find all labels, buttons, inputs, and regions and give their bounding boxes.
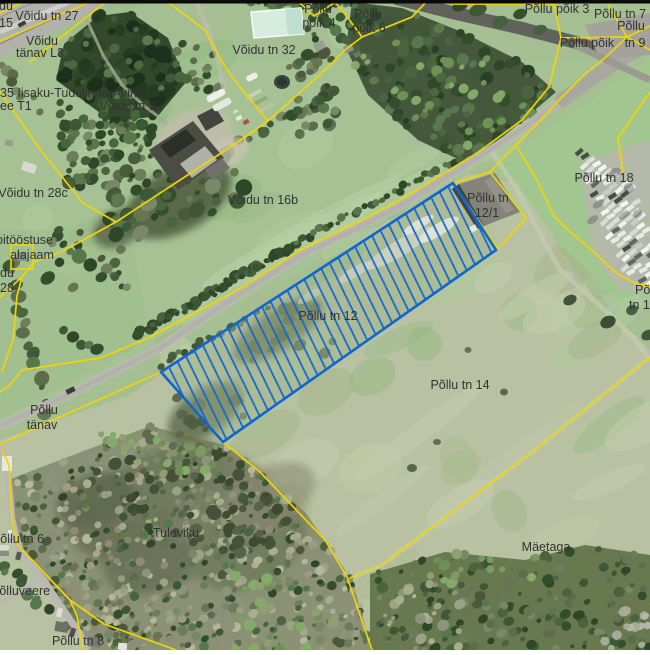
- svg-text:Võidu tn 32: Võidu tn 32: [232, 43, 295, 57]
- svg-text:Põllu tn 14: Põllu tn 14: [430, 378, 489, 392]
- svg-text:35 Iisaku-Tudulinna-Avinurme: 35 Iisaku-Tudulinna-Avinurme: [0, 86, 165, 100]
- svg-text:Põllu: Põllu: [617, 19, 645, 33]
- svg-text:Võidu tn 30: Võidu tn 30: [99, 99, 162, 113]
- svg-text:alajaam: alajaam: [10, 248, 54, 262]
- svg-text:Tuleviku: Tuleviku: [153, 526, 199, 540]
- svg-text:Põllu tn: Põllu tn: [467, 191, 509, 205]
- svg-text:du: du: [0, 266, 14, 280]
- svg-text:Põllu: Põllu: [354, 7, 382, 21]
- svg-text:ee T1: ee T1: [0, 99, 32, 113]
- svg-text:tänav L3: tänav L3: [16, 46, 64, 60]
- svg-text:12/1: 12/1: [475, 206, 499, 220]
- svg-text:Põllu põik 3: Põllu põik 3: [525, 2, 590, 16]
- svg-text:tänav: tänav: [27, 418, 58, 432]
- svg-text:28: 28: [0, 281, 14, 295]
- svg-text:Põllu: Põllu: [30, 403, 58, 417]
- svg-text:Põllu põik: Põllu põik: [560, 36, 615, 50]
- svg-text:Mäetaga: Mäetaga: [522, 540, 571, 554]
- svg-text:oitööstuse: oitööstuse: [0, 233, 53, 247]
- svg-text:Võidu tn 27: Võidu tn 27: [15, 9, 78, 23]
- svg-text:Võidu tn 28c: Võidu tn 28c: [0, 186, 68, 200]
- svg-text:põik 6: põik 6: [352, 21, 385, 35]
- svg-text:Põllu: Põllu: [304, 2, 332, 16]
- svg-text:Põlluveere: Põlluveere: [0, 584, 50, 598]
- svg-text:Põllu tn 8: Põllu tn 8: [52, 634, 104, 648]
- svg-text:põik 4: põik 4: [302, 16, 335, 30]
- svg-text:Põ: Põ: [635, 283, 650, 297]
- svg-text:Põllu tn 12: Põllu tn 12: [298, 309, 357, 323]
- svg-text:tn 1: tn 1: [629, 298, 650, 312]
- svg-text:Võidu tn 16b: Võidu tn 16b: [228, 193, 298, 207]
- svg-text:Põllu tn 6: Põllu tn 6: [0, 532, 44, 546]
- svg-text:tn 9: tn 9: [625, 36, 646, 50]
- svg-text:15: 15: [0, 16, 13, 30]
- svg-text:Põllu tn 18: Põllu tn 18: [574, 171, 633, 185]
